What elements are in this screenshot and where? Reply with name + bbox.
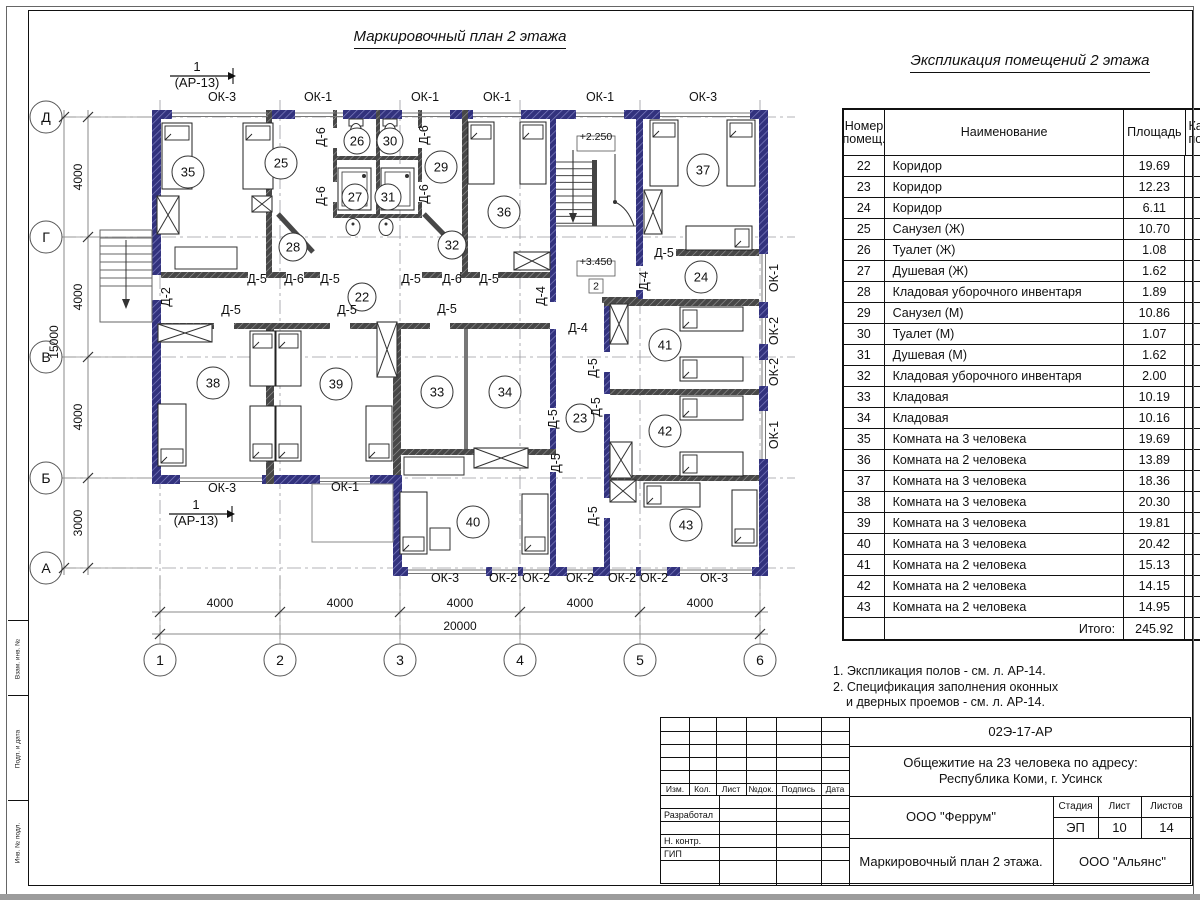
sheet-frame xyxy=(28,10,1193,886)
side-stamp-inv: Инв. № подл. xyxy=(8,800,29,885)
drawing-sheet: ДГВБА12345640004000400030001500040004000… xyxy=(0,0,1200,900)
sheet-bottom-edge xyxy=(0,894,1200,900)
side-stamp-vzam: Взам. инв. № xyxy=(8,620,29,696)
side-stamp-podp: Подп. и дата xyxy=(8,695,29,801)
